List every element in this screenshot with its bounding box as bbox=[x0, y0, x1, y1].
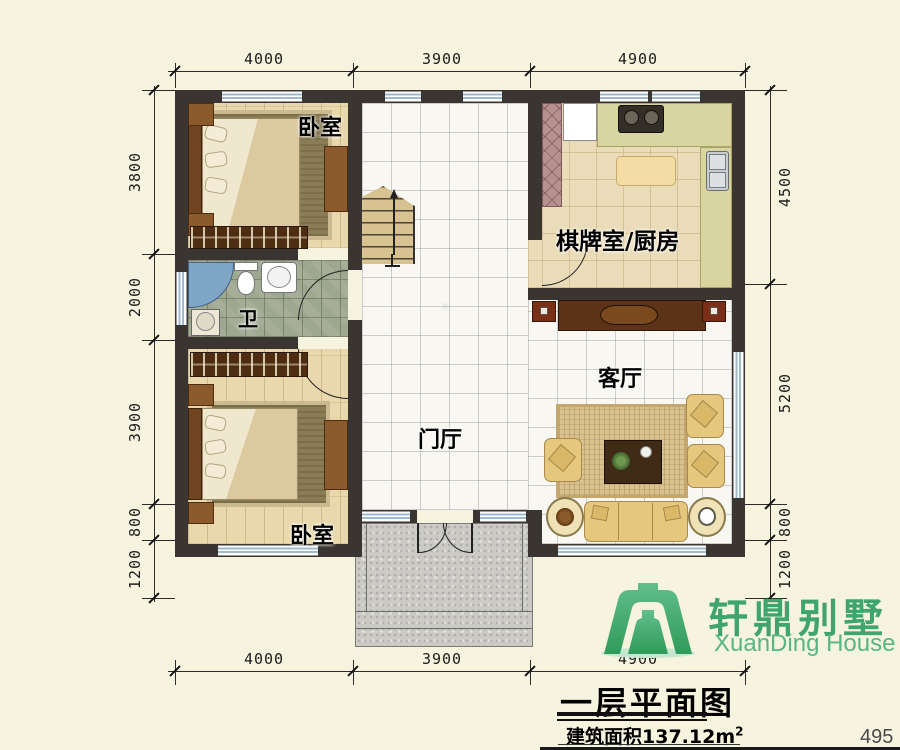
label-foyer: 门厅 bbox=[418, 422, 462, 454]
dim-line-right bbox=[770, 86, 771, 602]
bath-sink-basin bbox=[267, 266, 291, 288]
dim-ext bbox=[353, 660, 354, 685]
window-foyer-south-2 bbox=[480, 510, 526, 523]
dim-top-3: 4900 bbox=[598, 50, 678, 68]
dim-bottom-1: 4000 bbox=[224, 650, 304, 668]
dim-left-3: 3900 bbox=[126, 392, 144, 452]
window-stair-2 bbox=[463, 90, 502, 103]
bedroom-bottom-bed-headboard bbox=[188, 408, 202, 500]
stair-arrow-line bbox=[393, 197, 395, 255]
dim-line-left bbox=[154, 86, 155, 602]
bedroom-top-dresser bbox=[324, 146, 348, 212]
title-underline-thin bbox=[557, 719, 707, 721]
kitchen-sink-basin-1 bbox=[709, 154, 726, 170]
kitchen-sink-basin-2 bbox=[709, 172, 726, 188]
dim-left-5: 1200 bbox=[126, 539, 144, 599]
dim-ext bbox=[530, 660, 531, 685]
kitchen-tall-cabinet bbox=[542, 103, 562, 207]
toilet-tank bbox=[234, 262, 258, 271]
fridge bbox=[563, 103, 597, 141]
dim-ext bbox=[142, 254, 175, 255]
toilet-bowl bbox=[237, 271, 255, 295]
window-foyer-south-1 bbox=[362, 510, 410, 523]
drawing-title: 一层平面图 bbox=[560, 678, 735, 724]
window-living-south bbox=[558, 544, 706, 557]
porch-edge-left bbox=[366, 523, 367, 612]
dim-left-2: 2000 bbox=[126, 267, 144, 327]
sofa-divider-1 bbox=[618, 503, 619, 540]
window-kitchen-1 bbox=[600, 90, 648, 103]
dim-top-2: 3900 bbox=[402, 50, 482, 68]
label-living: 客厅 bbox=[598, 361, 642, 393]
dim-ext bbox=[142, 540, 175, 541]
title-underline-thick bbox=[557, 712, 707, 716]
stove-burner-2 bbox=[644, 110, 659, 125]
coffee-table-plant bbox=[612, 452, 630, 470]
bedroom-bottom-pillow-3 bbox=[204, 463, 227, 480]
window-bedroom-top bbox=[222, 90, 302, 103]
stair-direction-mark-h bbox=[385, 265, 400, 267]
window-kitchen-2 bbox=[652, 90, 700, 103]
bedroom-bottom-wardrobe bbox=[190, 352, 308, 377]
entry-door-leaf-right bbox=[471, 523, 473, 553]
logo: 轩鼎别墅 XuanDing House bbox=[598, 580, 898, 664]
xuanding-logo-icon bbox=[598, 582, 698, 658]
dim-right-2: 5200 bbox=[776, 363, 794, 423]
side-cabinet-right-knob bbox=[710, 307, 718, 315]
stove-burner-1 bbox=[624, 110, 639, 125]
label-kitchen: 棋牌室/厨房 bbox=[556, 222, 679, 256]
bedroom-bottom-nightstand-2 bbox=[188, 502, 214, 524]
dim-line-top bbox=[168, 71, 748, 72]
wall-bathroom-south bbox=[175, 337, 298, 349]
window-bathroom-west bbox=[175, 272, 188, 325]
porch-step-line-1 bbox=[356, 611, 532, 612]
window-stair-1 bbox=[385, 90, 421, 103]
round-table-right-ring bbox=[698, 507, 716, 526]
wall-kitchen-west-corner bbox=[528, 288, 542, 300]
wall-mid-vertical-upper bbox=[348, 90, 362, 270]
dim-left-1: 3800 bbox=[126, 142, 144, 202]
area-underline bbox=[558, 744, 740, 745]
dim-top-1: 4000 bbox=[224, 50, 304, 68]
page-number: 495 bbox=[860, 726, 893, 749]
sofa-divider-2 bbox=[652, 503, 653, 540]
tv-screen bbox=[600, 305, 658, 325]
logo-name-en: XuanDing House bbox=[714, 630, 895, 658]
bedroom-top-wardrobe bbox=[190, 226, 308, 249]
area-sup: 2 bbox=[735, 725, 743, 739]
label-bedroom-top: 卧室 bbox=[298, 110, 342, 142]
dim-line-bottom bbox=[168, 671, 748, 672]
window-living-east bbox=[732, 352, 745, 498]
kitchen-door-floor bbox=[528, 240, 542, 288]
wall-kitchen-west bbox=[528, 90, 542, 240]
dim-ext bbox=[142, 340, 175, 341]
sofa-pillow-1 bbox=[591, 505, 609, 522]
round-table-left-basket bbox=[556, 508, 574, 526]
wall-bedroom-top-south bbox=[175, 248, 298, 260]
label-bathroom: 卫 bbox=[238, 303, 258, 332]
bedroom-bottom-nightstand-1 bbox=[188, 384, 214, 406]
coffee-table-dish bbox=[640, 446, 652, 458]
porch-step-line-2 bbox=[356, 628, 532, 629]
bedroom-top-nightstand-1 bbox=[188, 103, 214, 126]
dim-ext bbox=[142, 598, 175, 599]
porch-edge-right bbox=[522, 523, 523, 612]
mahjong-table bbox=[616, 156, 676, 186]
dim-bottom-2: 3900 bbox=[402, 650, 482, 668]
label-bedroom-bottom: 卧室 bbox=[290, 518, 334, 550]
dim-ext bbox=[142, 504, 175, 505]
dim-ext bbox=[142, 90, 175, 91]
wall-kitchen-south bbox=[542, 288, 745, 300]
sofa-pillow-2 bbox=[663, 505, 681, 522]
dim-ext bbox=[175, 660, 176, 685]
side-cabinet-left-knob bbox=[540, 307, 548, 315]
floorplan-sheet: 卧室 棋牌室/厨房 卫 门厅 客厅 卧室 4000 3900 4900 4000… bbox=[0, 0, 900, 750]
washing-machine-drum bbox=[196, 312, 215, 331]
dim-right-1: 4500 bbox=[776, 157, 794, 217]
bedroom-bottom-dresser bbox=[324, 420, 348, 490]
